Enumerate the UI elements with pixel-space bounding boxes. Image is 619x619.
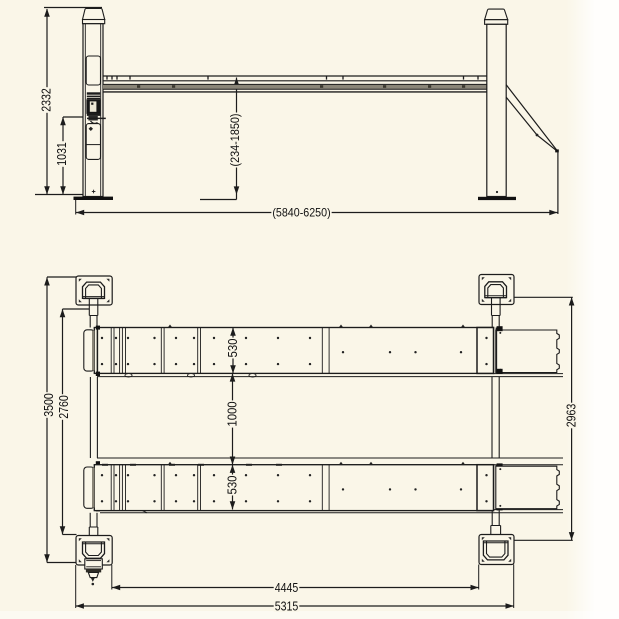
svg-text:(234-1850): (234-1850) bbox=[230, 113, 242, 166]
svg-text:4445: 4445 bbox=[275, 581, 299, 595]
svg-text:1031: 1031 bbox=[55, 142, 69, 166]
svg-text:2332: 2332 bbox=[40, 88, 54, 112]
svg-text:2760: 2760 bbox=[57, 395, 71, 419]
svg-text:530: 530 bbox=[226, 339, 240, 358]
svg-text:(5840-6250): (5840-6250) bbox=[272, 205, 330, 219]
svg-text:5315: 5315 bbox=[275, 600, 299, 614]
svg-text:2963: 2963 bbox=[565, 404, 579, 428]
svg-text:530: 530 bbox=[226, 476, 240, 495]
svg-text:1000: 1000 bbox=[226, 401, 240, 426]
svg-text:3500: 3500 bbox=[42, 393, 56, 417]
